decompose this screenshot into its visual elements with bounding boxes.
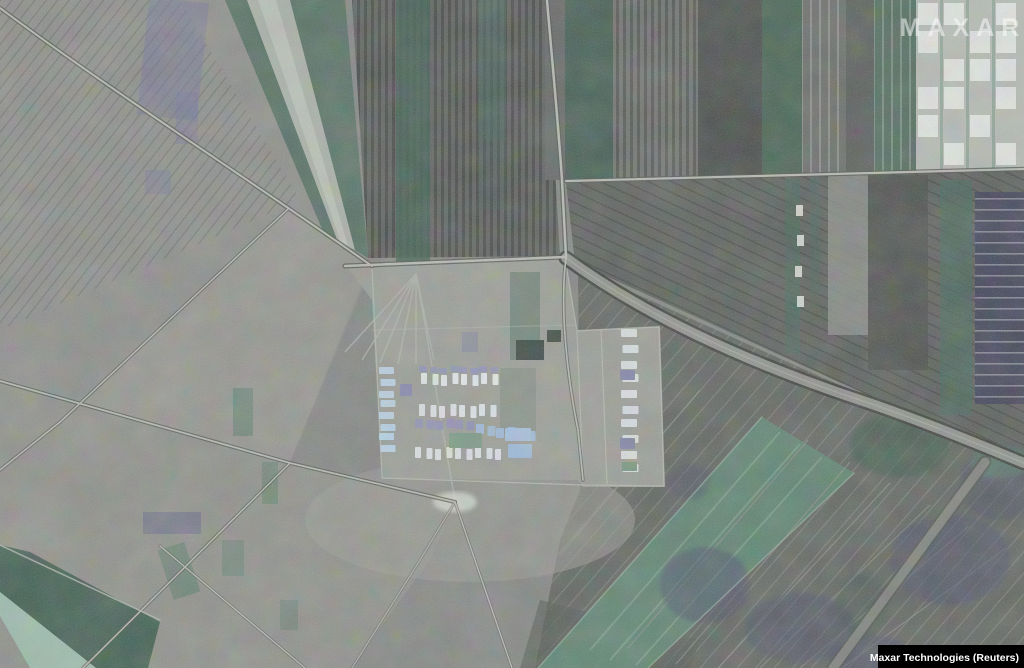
maxar-watermark: MAXAR (900, 14, 1024, 42)
credit-bar: Maxar Technologies (Reuters) (870, 645, 1024, 668)
satellite-photo: MAXAR Maxar Technologies (Reuters) (0, 0, 1024, 668)
credit-text: Maxar Technologies (Reuters) (870, 652, 1019, 664)
satellite-canvas: MAXAR Maxar Technologies (Reuters) (0, 0, 1024, 668)
grain-overlay (0, 0, 1024, 668)
